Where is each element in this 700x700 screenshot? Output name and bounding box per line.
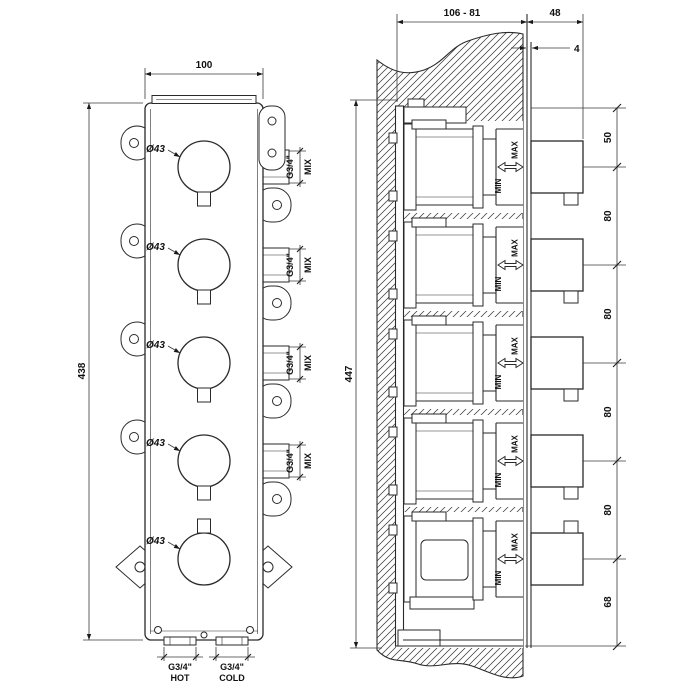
knob-diameter-label: Ø43 bbox=[146, 536, 165, 547]
cold-inlet-port bbox=[216, 637, 248, 645]
cold-thread-label: G3/4" bbox=[220, 662, 244, 672]
outlet-mix-label: MIX bbox=[303, 159, 313, 175]
width-dim-label: 100 bbox=[196, 60, 213, 71]
outlet-thread-label: G3/4" bbox=[285, 253, 295, 277]
chain-label: 80 bbox=[603, 504, 614, 516]
hot-inlet-port bbox=[164, 637, 196, 645]
knob-circle bbox=[178, 337, 230, 389]
height-dim-label: 438 bbox=[77, 362, 88, 379]
max-label: MAX bbox=[511, 336, 520, 354]
chain-label: 68 bbox=[603, 596, 614, 608]
chain-label: 80 bbox=[603, 210, 614, 222]
plate-gap-label: 4 bbox=[574, 44, 580, 55]
knob-diameter-label: Ø43 bbox=[146, 242, 165, 253]
knob-circle bbox=[178, 239, 230, 291]
outlet-mix-label: MIX bbox=[303, 257, 313, 273]
outlet-mix-label: MIX bbox=[303, 453, 313, 469]
outlet-thread-label: G3/4" bbox=[285, 449, 295, 473]
section-height-label: 447 bbox=[344, 365, 355, 382]
handle bbox=[531, 435, 583, 487]
handles-side bbox=[531, 141, 583, 585]
min-label: MIN bbox=[494, 570, 503, 585]
handle bbox=[531, 533, 583, 585]
handle bbox=[531, 337, 583, 389]
cold-label: COLD bbox=[219, 673, 245, 683]
outlet-thread-label: G3/4" bbox=[285, 155, 295, 179]
knob-diameter-label: Ø43 bbox=[146, 144, 165, 155]
inlet-dimensions: G3/4" HOT G3/4" COLD bbox=[157, 647, 255, 683]
outlet-mix-label: MIX bbox=[303, 355, 313, 371]
front-view: Ø43 Ø43 Ø43 Ø43 Ø43 100 438 bbox=[77, 60, 313, 683]
knob-diameter-label: Ø43 bbox=[146, 340, 165, 351]
chain-label: 80 bbox=[603, 406, 614, 418]
hot-label: HOT bbox=[171, 673, 191, 683]
max-label: MAX bbox=[511, 238, 520, 256]
width-dimension: 100 bbox=[145, 60, 263, 99]
max-label: MAX bbox=[511, 532, 520, 550]
chain-label: 80 bbox=[603, 308, 614, 320]
knob-diameter-label: Ø43 bbox=[146, 438, 165, 449]
min-label: MIN bbox=[494, 178, 503, 193]
outlet-thread-label: G3/4" bbox=[285, 351, 295, 375]
technical-drawing: Ø43 Ø43 Ø43 Ø43 Ø43 100 438 bbox=[0, 0, 700, 700]
handle-depth-label: 48 bbox=[549, 8, 561, 19]
top-flange bbox=[259, 106, 285, 170]
knob-circle bbox=[178, 141, 230, 193]
max-label: MAX bbox=[511, 140, 520, 158]
max-label: MAX bbox=[511, 434, 520, 452]
min-label: MIN bbox=[494, 472, 503, 487]
chain-label: 50 bbox=[603, 132, 614, 144]
handle bbox=[531, 239, 583, 291]
handle bbox=[531, 141, 583, 193]
section-view: MAX MIN MAX MIN bbox=[344, 8, 626, 678]
min-label: MIN bbox=[494, 374, 503, 389]
depth-range-label: 106 - 81 bbox=[444, 8, 481, 19]
min-label: MIN bbox=[494, 276, 503, 291]
knob-circle bbox=[178, 435, 230, 487]
hot-thread-label: G3/4" bbox=[168, 662, 192, 672]
knob-circle bbox=[178, 533, 230, 585]
